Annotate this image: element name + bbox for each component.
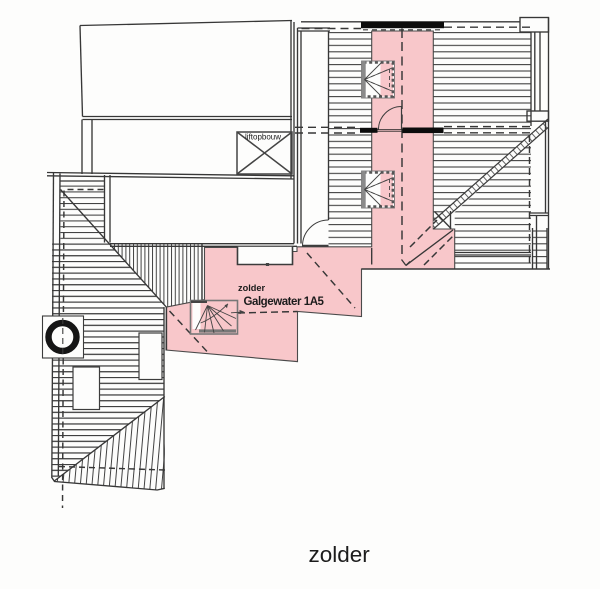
svg-text:liftopbouw: liftopbouw (245, 133, 281, 142)
svg-text:Galgewater 1A5: Galgewater 1A5 (244, 296, 325, 308)
svg-text:zolder: zolder (309, 542, 371, 567)
svg-text:zolder: zolder (238, 283, 265, 293)
